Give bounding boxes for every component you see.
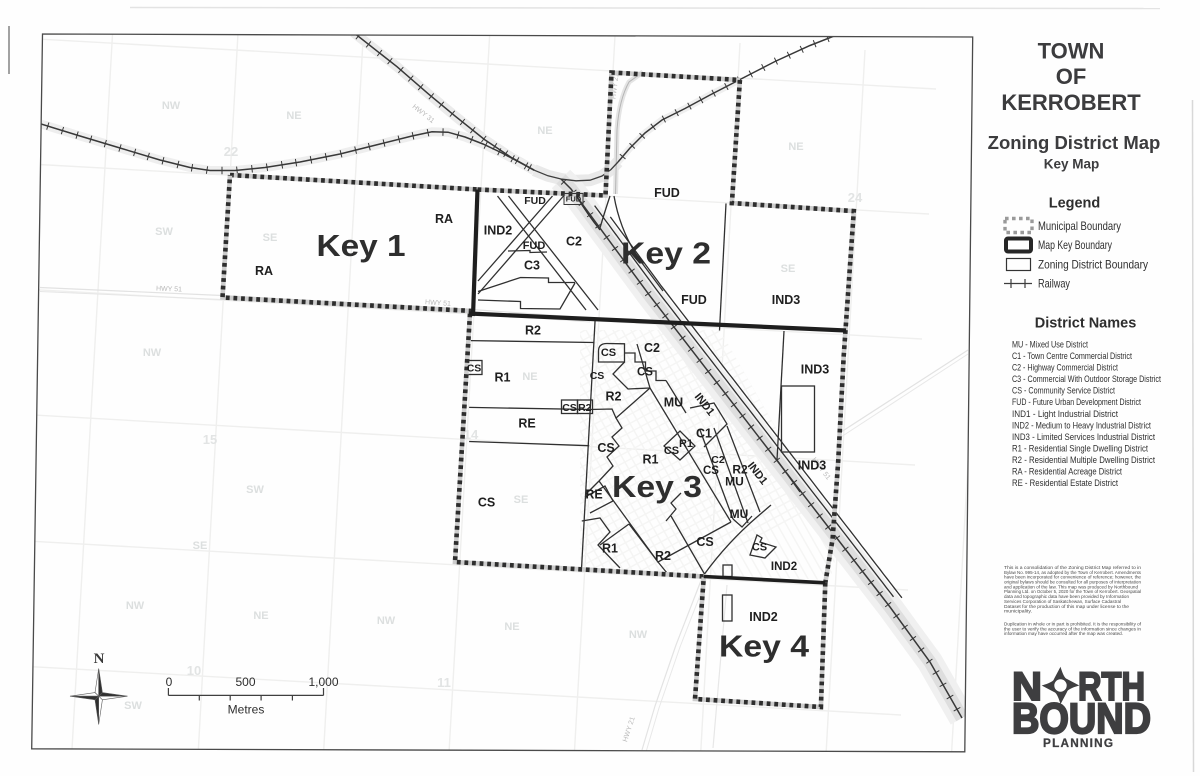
svg-text:Key 1: Key 1 bbox=[317, 228, 406, 263]
svg-text:FUD: FUD bbox=[566, 195, 582, 204]
svg-text:Municipal Boundary: Municipal Boundary bbox=[1038, 219, 1121, 233]
svg-text:IND3: IND3 bbox=[798, 459, 827, 473]
svg-text:CS: CS bbox=[562, 402, 577, 414]
svg-text:24: 24 bbox=[848, 190, 863, 205]
svg-text:Zoning District Map: Zoning District Map bbox=[988, 132, 1161, 153]
svg-text:R1: R1 bbox=[679, 438, 693, 450]
svg-text:R2: R2 bbox=[606, 390, 622, 404]
svg-text:SE: SE bbox=[514, 494, 529, 506]
svg-text:MU: MU bbox=[664, 396, 683, 410]
svg-text:R2: R2 bbox=[525, 324, 541, 338]
svg-text:22: 22 bbox=[224, 144, 238, 159]
svg-text:information may have occurred: information may have occurred after the … bbox=[1004, 631, 1123, 636]
svg-text:NW: NW bbox=[377, 615, 396, 627]
svg-text:0: 0 bbox=[166, 675, 173, 689]
svg-text:MU: MU bbox=[725, 474, 744, 488]
svg-text:R2: R2 bbox=[578, 402, 592, 414]
svg-text:Key 4: Key 4 bbox=[719, 629, 810, 664]
svg-text:District Names: District Names bbox=[1035, 316, 1137, 332]
svg-text:RA: RA bbox=[255, 264, 273, 278]
svg-text:C3 - Commercial With Outdoor S: C3 - Commercial With Outdoor Storage Dis… bbox=[1012, 374, 1161, 384]
svg-text:Legend: Legend bbox=[1049, 196, 1101, 212]
svg-text:IND3 - Limited Services Indust: IND3 - Limited Services Industrial Distr… bbox=[1012, 432, 1155, 442]
svg-text:C3: C3 bbox=[524, 259, 540, 273]
svg-text:R1: R1 bbox=[602, 542, 618, 556]
svg-text:C2: C2 bbox=[644, 341, 660, 355]
svg-text:NW: NW bbox=[143, 347, 162, 359]
svg-text:C1: C1 bbox=[696, 427, 712, 441]
svg-text:1,000: 1,000 bbox=[308, 675, 338, 689]
svg-text:FUD: FUD bbox=[523, 240, 546, 252]
svg-text:SW: SW bbox=[124, 700, 142, 712]
svg-text:NE: NE bbox=[788, 141, 803, 153]
svg-text:CS: CS bbox=[703, 465, 719, 477]
svg-text:CS: CS bbox=[664, 445, 679, 457]
svg-text:Key Map: Key Map bbox=[1044, 157, 1100, 172]
svg-text:NE: NE bbox=[522, 371, 537, 383]
svg-text:Zoning District Boundary: Zoning District Boundary bbox=[1038, 258, 1148, 272]
svg-text:IND2 - Medium to Heavy Industr: IND2 - Medium to Heavy Industrial Distri… bbox=[1012, 420, 1151, 430]
svg-text:NW: NW bbox=[126, 600, 145, 612]
svg-text:R1: R1 bbox=[643, 453, 659, 467]
svg-text:IND3: IND3 bbox=[801, 363, 830, 377]
svg-text:PLANNING: PLANNING bbox=[1043, 736, 1114, 750]
svg-text:C1 - Town Centre Commercial Di: C1 - Town Centre Commercial District bbox=[1012, 351, 1132, 361]
svg-text:R1 - Residential Single Dwelli: R1 - Residential Single Dwelling Distric… bbox=[1012, 443, 1148, 453]
svg-text:IND2: IND2 bbox=[484, 224, 513, 238]
svg-text:IND1 - Light Industrial Distri: IND1 - Light Industrial District bbox=[1012, 409, 1118, 419]
svg-text:SE: SE bbox=[263, 232, 278, 244]
svg-text:FUD: FUD bbox=[654, 186, 680, 200]
svg-text:TOWN: TOWN bbox=[1038, 38, 1105, 63]
svg-text:municipality.: municipality. bbox=[1004, 609, 1032, 614]
svg-text:CS: CS bbox=[637, 367, 653, 379]
svg-text:N: N bbox=[94, 651, 105, 667]
svg-text:CS: CS bbox=[601, 347, 616, 359]
svg-text:OF: OF bbox=[1056, 64, 1087, 89]
svg-text:NE: NE bbox=[504, 621, 519, 633]
svg-text:IND2: IND2 bbox=[749, 610, 778, 624]
svg-text:CS: CS bbox=[597, 441, 614, 455]
svg-text:NE: NE bbox=[537, 125, 552, 137]
svg-text:NW: NW bbox=[162, 100, 181, 112]
svg-text:FUD - Future Urban Development: FUD - Future Urban Development District bbox=[1012, 397, 1141, 407]
svg-text:14: 14 bbox=[464, 427, 479, 442]
svg-text:SE: SE bbox=[193, 540, 208, 552]
svg-text:RE: RE bbox=[518, 417, 535, 431]
svg-text:CS: CS bbox=[478, 496, 495, 510]
svg-text:SW: SW bbox=[246, 484, 264, 496]
svg-text:CS: CS bbox=[752, 542, 767, 554]
svg-text:Key 3: Key 3 bbox=[612, 469, 702, 504]
svg-text:FUD: FUD bbox=[681, 293, 707, 307]
svg-text:Metres: Metres bbox=[228, 703, 265, 717]
svg-text:IND2: IND2 bbox=[771, 561, 797, 573]
svg-text:RA: RA bbox=[435, 212, 453, 226]
svg-text:Map Key Boundary: Map Key Boundary bbox=[1038, 238, 1112, 252]
svg-text:IND3: IND3 bbox=[772, 293, 801, 307]
svg-text:CS: CS bbox=[467, 362, 482, 374]
svg-text:SE: SE bbox=[781, 263, 796, 275]
svg-text:FUD: FUD bbox=[524, 195, 546, 207]
svg-text:R1: R1 bbox=[495, 371, 511, 385]
svg-text:RE: RE bbox=[585, 488, 602, 502]
svg-text:CS - Community Service Distric: CS - Community Service District bbox=[1012, 386, 1115, 396]
svg-text:CS: CS bbox=[590, 370, 605, 382]
svg-text:MU: MU bbox=[730, 507, 749, 521]
svg-text:RE - Residential Estate Distri: RE - Residential Estate District bbox=[1012, 478, 1118, 488]
svg-text:10: 10 bbox=[187, 663, 201, 678]
svg-text:KERROBERT: KERROBERT bbox=[1001, 90, 1141, 115]
svg-text:C2 - Highway Commercial Distri: C2 - Highway Commercial District bbox=[1012, 363, 1118, 373]
svg-text:C2: C2 bbox=[566, 235, 582, 249]
svg-text:C2: C2 bbox=[711, 454, 725, 466]
svg-text:NE: NE bbox=[286, 110, 301, 122]
svg-text:500: 500 bbox=[235, 675, 255, 689]
svg-text:15: 15 bbox=[203, 432, 217, 447]
svg-text:R2: R2 bbox=[655, 549, 671, 563]
svg-text:R2 - Residential Multiple Dwel: R2 - Residential Multiple Dwelling Distr… bbox=[1012, 455, 1155, 465]
svg-text:NE: NE bbox=[253, 610, 268, 622]
svg-text:NW: NW bbox=[629, 629, 648, 641]
svg-text:MU - Mixed Use District: MU - Mixed Use District bbox=[1012, 340, 1088, 350]
svg-text:HWY 51: HWY 51 bbox=[156, 286, 182, 294]
svg-text:RA - Residential Acreage Distr: RA - Residential Acreage District bbox=[1012, 467, 1122, 477]
svg-text:Key 2: Key 2 bbox=[621, 236, 711, 271]
svg-text:SW: SW bbox=[155, 226, 173, 238]
svg-text:11: 11 bbox=[437, 675, 451, 690]
svg-text:CS: CS bbox=[696, 535, 713, 549]
svg-text:Railway: Railway bbox=[1038, 277, 1070, 291]
